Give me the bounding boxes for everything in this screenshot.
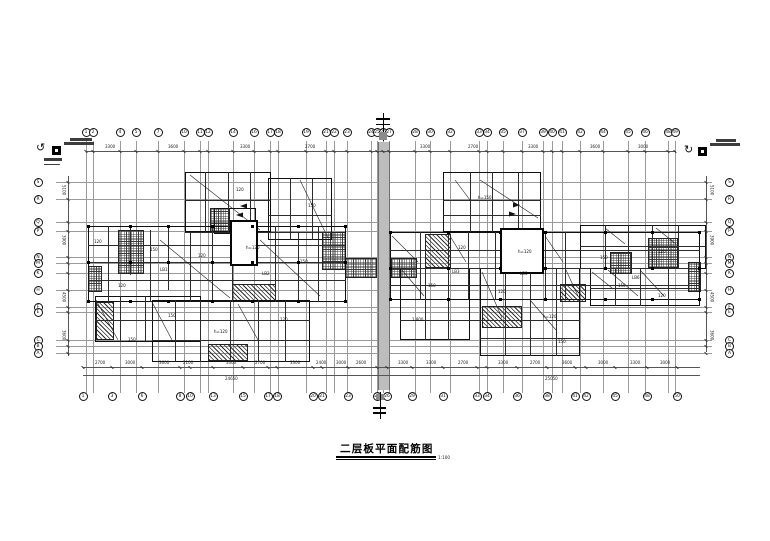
section-marker-bottom: [367, 392, 393, 424]
stair-arrow: [509, 212, 516, 217]
span-diagonal: [592, 272, 612, 288]
slab-annotation: h=120: [214, 330, 228, 335]
row-bubble-left: S: [34, 178, 43, 187]
dimension-text: 4500: [709, 292, 714, 302]
dimension-text: 2100: [183, 361, 193, 366]
column-mark: [344, 225, 347, 228]
slab-annotation: 150: [168, 314, 176, 319]
dimension-text: 3000: [638, 145, 648, 150]
axis-bubble-top: 42: [576, 128, 585, 137]
span-diagonal: [260, 240, 320, 296]
slab-annotation: 120: [458, 246, 466, 251]
axis-bubble-top: 4: [116, 128, 125, 137]
column-mark: [544, 231, 547, 234]
dimension-text: 5100: [709, 185, 714, 195]
detail-square-inner: [701, 150, 704, 153]
dimension-text: 2700: [458, 361, 468, 366]
axis-bubble-bottom: 23: [344, 392, 353, 401]
axis-bubble-bottom: 15: [239, 392, 248, 401]
elevator-shaft: [230, 220, 258, 266]
column-mark: [87, 300, 90, 303]
slab-annotation: LB3: [452, 270, 460, 275]
axis-bubble-bottom: 45: [611, 392, 620, 401]
detail-square-inner: [55, 149, 58, 152]
span-diagonal: [238, 304, 258, 340]
axis-bubble-top: 46: [641, 128, 650, 137]
stair-arrow: [513, 203, 520, 208]
column-mark: [651, 298, 654, 301]
slab-annotation: LB5: [520, 272, 528, 277]
span-diagonal: [605, 228, 625, 244]
dimension-text: 3300: [630, 361, 640, 366]
stair-arrow: [240, 204, 247, 209]
dimension-text: 3000: [336, 361, 346, 366]
section-bar: [373, 412, 386, 414]
axis-bubble-bottom: 29: [408, 392, 417, 401]
span-diagonal: [300, 180, 328, 238]
slab-annotation: 150: [428, 284, 436, 289]
slab-annotation: 120: [94, 240, 102, 245]
axis-bubble-bottom: 42: [582, 392, 591, 401]
column-mark: [447, 298, 450, 301]
slab-annotation: h=120: [518, 250, 532, 255]
column-mark: [389, 231, 392, 234]
axis-bubble-top: 39: [539, 128, 548, 137]
drawing-title-block: 二层板平面配筋图 1:100: [336, 441, 496, 467]
column-mark: [129, 300, 132, 303]
row-bubble-right: P: [725, 227, 734, 236]
title-underline: [336, 456, 436, 458]
detail-callout-right: ↻: [684, 140, 760, 166]
dimension-text: 3900: [709, 235, 714, 245]
slab-annotation: h=120: [246, 246, 260, 251]
dimension-text: 3300: [420, 145, 430, 150]
column-mark: [499, 267, 502, 270]
slab-annotation: 120: [280, 318, 288, 323]
stair-arrow: [236, 213, 243, 218]
dimension-text: 3300: [240, 145, 250, 150]
callout-ref-number: [44, 158, 62, 161]
axis-bubble-top: 30: [426, 128, 435, 137]
axis-bubble-top: 34: [483, 128, 492, 137]
dimension-text: 3600: [590, 145, 600, 150]
axis-bubble-bottom: 3: [108, 392, 117, 401]
column-mark: [389, 298, 392, 301]
dimension-text: 3300: [290, 361, 300, 366]
callout-note-text: [710, 143, 740, 146]
column-mark: [604, 298, 607, 301]
slab-annotation: 120: [198, 254, 206, 259]
axis-bubble-bottom: 20: [309, 392, 318, 401]
slab-annotation: 150: [558, 340, 566, 345]
span-diagonal: [656, 228, 676, 244]
row-bubble-right: S: [725, 178, 734, 187]
dimension-text: 2400: [316, 361, 326, 366]
column-mark: [167, 225, 170, 228]
span-diagonal: [152, 302, 172, 340]
slab-annotation: 150: [600, 256, 608, 261]
column-mark: [344, 300, 347, 303]
column-mark: [447, 267, 450, 270]
dimension-text: 25050: [545, 377, 558, 382]
axis-bubble-top: 49: [671, 128, 680, 137]
slab-annotation: 120: [658, 294, 666, 299]
slab-annotation: LB6: [632, 276, 640, 281]
callout-ref-underline: [44, 164, 60, 165]
column-mark: [251, 225, 254, 228]
dimension-text: 2700: [530, 361, 540, 366]
callout-note-text: [64, 142, 94, 145]
column-mark: [211, 300, 214, 303]
axis-bubble-top: 44: [599, 128, 608, 137]
section-line: [380, 392, 382, 419]
column-mark: [251, 261, 254, 264]
axis-bubble-top: 40: [548, 128, 557, 137]
column-mark: [297, 300, 300, 303]
axis-bubble-top: 45: [624, 128, 633, 137]
axis-bubble-top: 10: [180, 128, 189, 137]
slab-annotation: 120: [236, 188, 244, 193]
axis-bubble-bottom: 1: [79, 392, 88, 401]
rotation-arrow-icon: ↺: [36, 142, 45, 153]
axis-bubble-bottom: 34: [483, 392, 492, 401]
column-mark: [698, 231, 701, 234]
section-block: [379, 132, 387, 140]
column-mark: [211, 225, 214, 228]
axis-bubble-bottom: 50: [673, 392, 682, 401]
column-mark: [251, 300, 254, 303]
drawing-title: 二层板平面配筋图: [340, 441, 434, 456]
column-mark: [604, 267, 607, 270]
row-bubble-left: Q: [34, 218, 43, 227]
row-bubble-right: R: [725, 195, 734, 204]
axis-bubble-bottom: 48: [643, 392, 652, 401]
slab-annotation: 120: [658, 250, 666, 255]
row-bubble-right: M: [725, 259, 734, 268]
section-bar: [376, 118, 390, 120]
row-bubble-left: E: [34, 308, 43, 317]
dimension-text: 2700: [255, 361, 265, 366]
span-diagonal: [392, 236, 418, 262]
slab-annotation: 150: [128, 338, 136, 343]
row-bubble-left: P: [34, 227, 43, 236]
row-bubble-left: K: [34, 269, 43, 278]
span-diagonal: [545, 236, 563, 262]
dimension-text: 3600: [168, 145, 178, 150]
axis-bubble-bottom: 33: [473, 392, 482, 401]
row-bubble-right: K: [725, 269, 734, 278]
dimension-text: 2600: [356, 361, 366, 366]
drawing-sheet: 1245710111214161718192122232425262728303…: [0, 0, 770, 541]
slab-annotation: h=150: [478, 196, 492, 201]
dimension-text: 4500: [61, 292, 66, 302]
slab-annotation: 150: [150, 248, 158, 253]
slab-annotation: LB2: [262, 272, 270, 277]
span-diagonal: [455, 180, 470, 200]
dimension-text: 3300: [426, 361, 436, 366]
column-mark: [651, 231, 654, 234]
axis-bubble-bottom: 21: [318, 392, 327, 401]
axis-bubble-top: 22: [330, 128, 339, 137]
dimension-text: 3600: [61, 330, 66, 340]
column-mark: [167, 300, 170, 303]
axis-bubble-bottom: 18: [273, 392, 282, 401]
dimension-text: 2700: [95, 361, 105, 366]
axis-bubble-bottom: 10: [186, 392, 195, 401]
span-diagonal: [160, 240, 230, 298]
axis-bubble-bottom: 31: [439, 392, 448, 401]
column-mark: [211, 261, 214, 264]
slab-annotation: h=120: [543, 315, 557, 320]
title-underline-thin: [336, 459, 436, 460]
axis-bubble-bottom: 41: [571, 392, 580, 401]
dimension-text: 3600: [562, 361, 572, 366]
row-bubble-right: H: [725, 286, 734, 295]
detail-callout-left: ↺: [36, 136, 108, 172]
axis-bubble-top: 12: [204, 128, 213, 137]
span-diagonal: [566, 270, 578, 296]
column-mark: [447, 231, 450, 234]
column-mark: [297, 225, 300, 228]
column-mark: [499, 298, 502, 301]
dimension-text: 2700: [305, 145, 315, 150]
axis-bubble-top: 19: [302, 128, 311, 137]
axis-bubble-top: 35: [499, 128, 508, 137]
column-mark: [651, 267, 654, 270]
column-mark: [87, 225, 90, 228]
row-bubble-left: A: [34, 349, 43, 358]
callout-note-text: [70, 138, 92, 141]
slab-annotation: 150: [300, 260, 308, 265]
dimension-text: 3300: [528, 145, 538, 150]
column-mark: [499, 231, 502, 234]
span-diagonal: [96, 300, 118, 340]
axis-bubble-bottom: 36: [513, 392, 522, 401]
slab-annotation: 1.800: [412, 318, 423, 323]
rotation-arrow-icon: ↻: [684, 144, 693, 155]
axis-bubble-bottom: 17: [264, 392, 273, 401]
column-mark: [698, 298, 701, 301]
column-mark: [129, 225, 132, 228]
section-marker-top: [370, 113, 396, 143]
axis-bubble-top: 32: [446, 128, 455, 137]
row-bubble-left: M: [34, 259, 43, 268]
dimension-text: 3300: [398, 361, 408, 366]
column-mark: [544, 267, 547, 270]
row-bubble-right: E: [725, 308, 734, 317]
column-mark: [698, 267, 701, 270]
callout-note-text: [716, 139, 736, 142]
slab-annotation: 120: [118, 284, 126, 289]
axis-bubble-top: 28: [411, 128, 420, 137]
row-bubble-right: A: [725, 349, 734, 358]
dimension-text: 3000: [125, 361, 135, 366]
axis-bubble-top: 23: [343, 128, 352, 137]
column-mark: [167, 261, 170, 264]
dimension-text: 2700: [468, 145, 478, 150]
column-mark: [389, 267, 392, 270]
section-bar: [373, 407, 386, 409]
slab-annotation: 120: [498, 290, 506, 295]
span-diagonal: [482, 272, 502, 318]
span-diagonal: [402, 270, 424, 296]
dimension-text: 3600: [709, 330, 714, 340]
dimension-text: 3000: [660, 361, 670, 366]
dimension-text: 24650: [225, 377, 238, 382]
axis-bubble-top: 37: [518, 128, 527, 137]
column-mark: [87, 261, 90, 264]
slab-annotation: LB1: [160, 268, 168, 273]
axis-bubble-top: 14: [229, 128, 238, 137]
dimension-text: 3000: [598, 361, 608, 366]
row-bubble-left: R: [34, 195, 43, 204]
slab-annotation: 150: [618, 284, 626, 289]
dimension-text: 5100: [61, 185, 66, 195]
axis-bubble-top: 18: [274, 128, 283, 137]
column-mark: [544, 298, 547, 301]
axis-bubble-bottom: 8: [176, 392, 185, 401]
dimension-text: 3300: [226, 361, 236, 366]
dimension-text: 3900: [61, 235, 66, 245]
axis-bubble-bottom: 13: [209, 392, 218, 401]
axis-bubble-top: 7: [154, 128, 163, 137]
axis-bubble-top: 16: [250, 128, 259, 137]
slab-annotation: 150: [308, 204, 316, 209]
axis-bubble-top: 41: [558, 128, 567, 137]
drawing-scale: 1:100: [438, 455, 450, 460]
column-mark: [344, 261, 347, 264]
axis-bubble-bottom: 38: [543, 392, 552, 401]
row-bubble-left: H: [34, 286, 43, 295]
dimension-text: 3300: [498, 361, 508, 366]
axis-bubble-top: 5: [132, 128, 141, 137]
column-mark: [129, 261, 132, 264]
dimension-text: 3600: [159, 361, 169, 366]
section-bar: [376, 124, 390, 126]
axis-bubble-bottom: 6: [138, 392, 147, 401]
row-bubble-right: Q: [725, 218, 734, 227]
column-mark: [604, 231, 607, 234]
